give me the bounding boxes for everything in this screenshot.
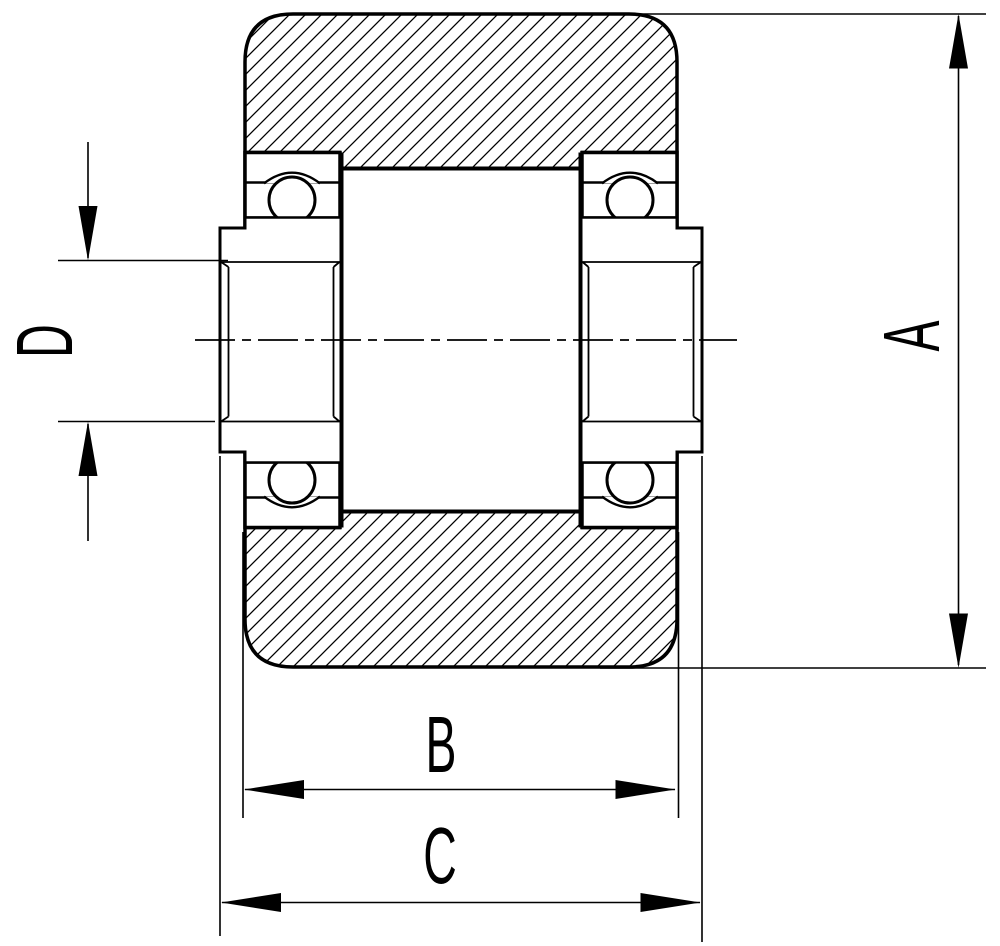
wheel-cross-section-drawing: D A B C <box>0 0 1000 946</box>
dimension-label-c: C <box>423 811 457 900</box>
dimension-label-a: A <box>867 320 956 351</box>
technical-drawing-page: D A B C <box>0 0 1000 946</box>
dimension-label-d: D <box>0 324 89 358</box>
dimension-d: D <box>0 142 228 541</box>
dimension-label-b: B <box>426 700 457 789</box>
